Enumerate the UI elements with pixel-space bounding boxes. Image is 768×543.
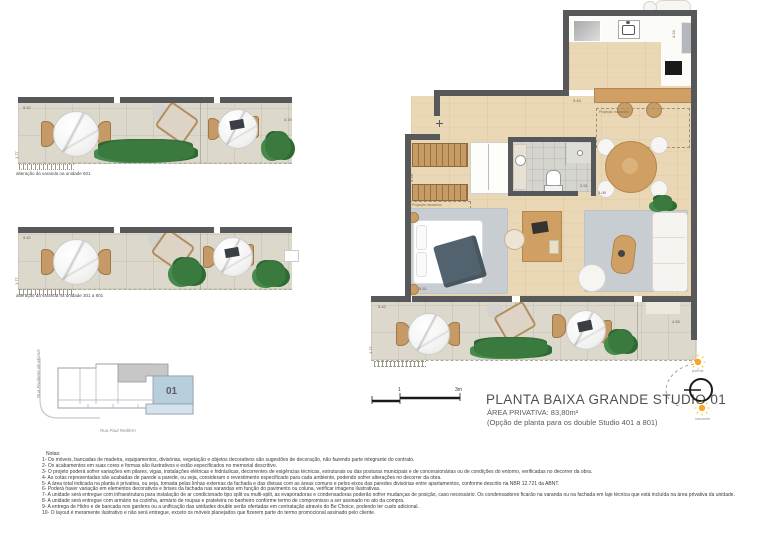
dimension-label: 5.42 [23, 106, 31, 110]
vanity-sink [515, 155, 526, 166]
hedge [98, 140, 194, 162]
note-item: 10- O layout é meramente ilustrativo e n… [42, 511, 764, 517]
plant [265, 132, 291, 160]
bathroom-wall [508, 137, 513, 196]
plant [653, 196, 673, 211]
sun-icon-nascente [695, 401, 710, 416]
dimension-label: 1.77 [15, 151, 19, 159]
mezzanine-projection-label: Projeção mezanino [597, 109, 689, 114]
wall [434, 90, 569, 96]
plan-option-label: (Opção de planta para os double Studio 4… [487, 418, 658, 427]
pouf [578, 264, 606, 292]
balcony-table [53, 111, 99, 157]
sink-basin-icon [622, 25, 635, 35]
variant-caption: alteração da varanda na unidade 601 [16, 171, 91, 176]
wall [434, 96, 440, 116]
variant-wall [18, 97, 114, 103]
plant [172, 258, 202, 286]
scale-tick-3m: 3m [455, 387, 462, 393]
balcony-table [213, 237, 253, 277]
bathroom-wall [508, 191, 578, 196]
balcony-table [218, 109, 258, 149]
dimension-label: 5.42 [23, 236, 31, 240]
desk-chair [504, 229, 525, 250]
variant-caption: alteração da varanda na unidade 301 a 80… [16, 293, 103, 298]
shower-glass [565, 143, 566, 165]
balcony-chair [552, 314, 566, 338]
variant-wall [220, 97, 292, 103]
wardrobe [470, 142, 510, 194]
variant-wall [120, 97, 214, 103]
balcony-mat [645, 300, 681, 315]
dining-chair [650, 136, 668, 154]
sofa [652, 212, 688, 292]
street-label-bottom: Rua Paul Redfern [100, 428, 136, 433]
wall [563, 10, 697, 16]
bathroom-wall [508, 137, 596, 142]
variant-hatch-strip [19, 164, 74, 170]
dimension-label: 4.19 [284, 118, 292, 122]
scale-tick-1: 1 [398, 387, 401, 393]
notes: Notas: 1- Os móveis, bancadas de madeira… [42, 452, 764, 517]
sink-faucet-icon [626, 21, 630, 24]
entry-door-marker [436, 120, 443, 127]
fridge [665, 61, 682, 75]
balcony-wall [642, 296, 691, 302]
dimension-label: 1.77 [15, 277, 19, 285]
sofa-cushion-line [653, 263, 685, 264]
staircase-run [412, 143, 468, 167]
staircase-run [412, 184, 468, 201]
bathroom-wall [591, 137, 596, 196]
desk-pad [549, 240, 559, 254]
wall [405, 134, 411, 302]
bathroom-vanity [513, 144, 527, 190]
compass-nascente-label: nascente [695, 417, 710, 421]
street-label-left: Rua Prudente de Morais [36, 349, 41, 398]
unit-01-label: 01 [166, 386, 178, 397]
dimension-label: 4.78 [410, 174, 414, 182]
sofa-cushion-line [653, 237, 685, 238]
kitchen-cabinet [573, 20, 601, 42]
balcony-table [408, 313, 450, 355]
balcony-wall [520, 296, 634, 302]
variant-wall [220, 227, 292, 233]
sun-icon-poente [691, 355, 706, 370]
dimension-label: 1.77 [369, 346, 373, 354]
hedge [474, 338, 548, 358]
dimension-label: 3.08 [598, 191, 606, 195]
sun-path-arc [666, 364, 694, 407]
dimension-label: 3.43 [573, 99, 581, 103]
dimension-label: 5.51 [419, 287, 427, 291]
dimension-label: 2.51 [580, 184, 588, 188]
plant [608, 330, 634, 354]
mezzanine-projection-label: Projeção mezanino [410, 202, 470, 207]
dimension-label: 4.24 [672, 30, 676, 38]
balcony-wall [371, 296, 405, 302]
variant-divider [200, 103, 201, 163]
plant [256, 261, 286, 287]
balcony-wall [412, 296, 512, 302]
dining-table-center [622, 158, 638, 174]
variant-note-box [284, 250, 299, 262]
shower-drain-icon [577, 150, 583, 156]
floor-plan-sheet: Projeção mezanino Projeção mezanino [0, 0, 768, 543]
plan-area-label: ÁREA PRIVATIVA: 83,80m² [487, 408, 578, 417]
variant-divider [200, 233, 201, 289]
pillow [416, 252, 427, 277]
balcony-hatch-strip [374, 361, 426, 367]
wall [563, 10, 569, 96]
pillow [416, 225, 427, 250]
coffee-table-decor [618, 250, 625, 257]
wall [691, 10, 697, 302]
balcony-wall [691, 302, 697, 340]
compass-poente-label: poente [692, 369, 704, 373]
dimension-label: 5.42 [378, 305, 386, 309]
variant-wall [120, 227, 214, 233]
desk [522, 211, 562, 262]
bar-counter [594, 88, 693, 103]
balcony-divider [637, 302, 638, 360]
balcony-table [53, 239, 99, 285]
variant-wall [18, 227, 114, 233]
wardrobe-rod [488, 144, 489, 190]
balcony-chair [97, 249, 111, 275]
dimension-label: 4.55 [672, 320, 680, 324]
